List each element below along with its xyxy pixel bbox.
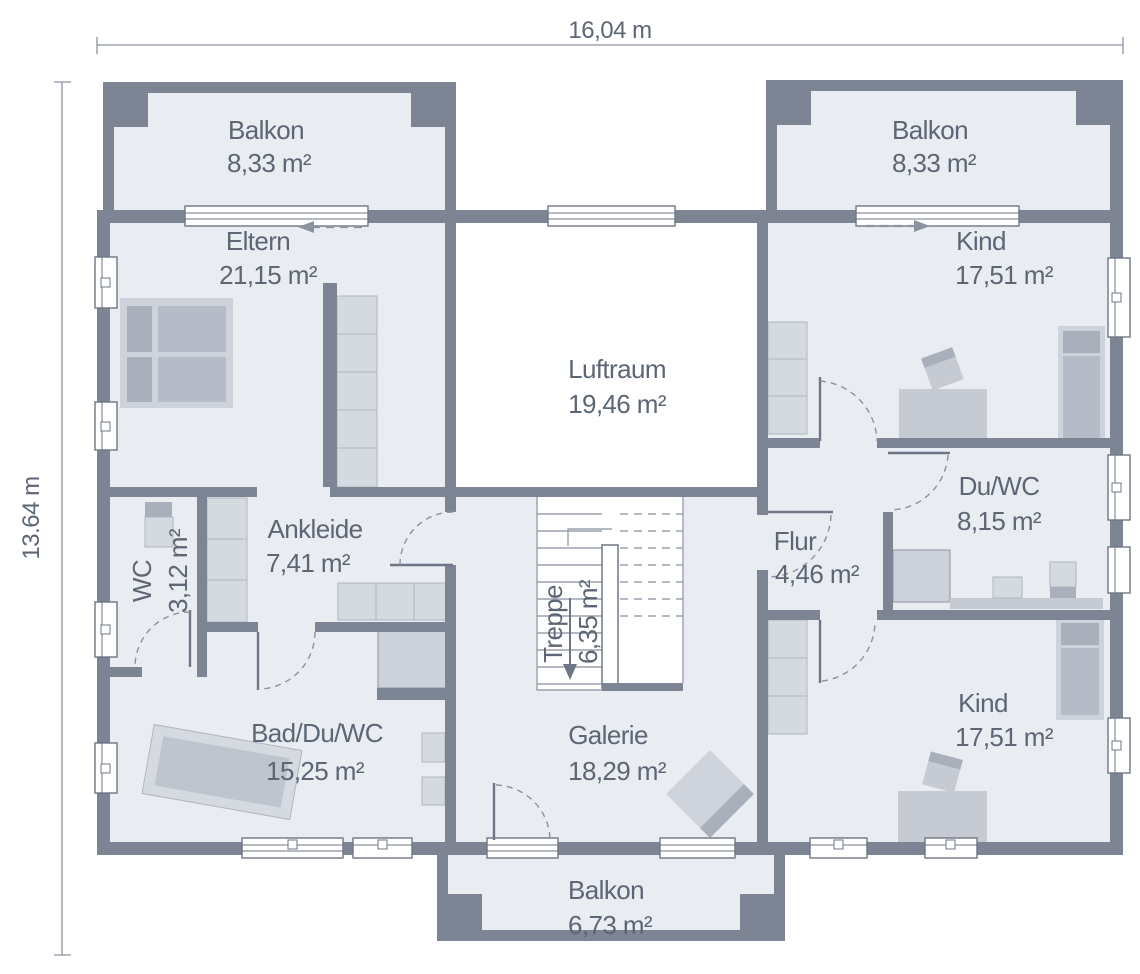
window-handle (378, 840, 387, 849)
floor-plan-page: 16,04 m 13.64 m Balkon 8,33 m² Balkon 8,… (0, 0, 1140, 974)
window-kind-bottom-right (1108, 718, 1130, 773)
wardrobe-kind-bottom (768, 620, 807, 734)
room-label-wc-area: 3,12 m² (163, 528, 193, 613)
room-label-balkon-bottom-name: Balkon (568, 875, 644, 905)
bed-pillow (127, 306, 152, 352)
bed-pillow (127, 357, 152, 402)
washbasin (422, 777, 445, 805)
bed-pillow (1063, 331, 1100, 353)
dimension-width-label: 16,04 m (568, 17, 651, 44)
wall-kind-bottom-north (877, 610, 1110, 620)
window (487, 838, 558, 858)
wall-wc-bottom (97, 667, 142, 677)
window (856, 206, 1019, 226)
toilet-tank (145, 502, 172, 517)
room-label-eltern-name: Eltern (226, 226, 290, 256)
stair-landing-edge (602, 683, 683, 691)
wall-ankleide-bottom (315, 622, 456, 632)
room-label-bad-name: Bad/Du/WC (251, 718, 383, 748)
window-handle (834, 840, 843, 849)
room-label-kind-top-area: 17,51 m² (955, 260, 1054, 290)
room-label-wc-name: WC (127, 560, 157, 602)
window-handle (946, 840, 955, 849)
closet-ankleide-left (207, 498, 247, 622)
window-bad-1 (242, 838, 343, 858)
room-label-balkon-bottom-area: 6,73 m² (568, 910, 653, 940)
bed-mattress (1063, 356, 1100, 439)
wall-ankleide-bottom (197, 622, 258, 632)
wardrobe-eltern (337, 296, 377, 487)
room-label-flur-name: Flur (774, 526, 817, 556)
room-label-balkon-tr-name: Balkon (892, 115, 968, 145)
wall-balcony (766, 80, 777, 223)
wall-balcony (103, 82, 114, 223)
vanity-counter (950, 598, 1103, 609)
balcony-pillar (448, 894, 482, 930)
room-label-kind-bottom-name: Kind (958, 688, 1008, 718)
room-label-bad-area: 15,25 m² (266, 756, 365, 786)
room-label-treppe-area: 6,35 m² (573, 579, 603, 664)
window-duwc-2 (1108, 547, 1130, 593)
room-label-ankleide-name: Ankleide (268, 514, 363, 544)
window-eltern-2 (95, 402, 117, 450)
wall-balcony (103, 82, 455, 93)
room-label-galerie-name: Galerie (568, 720, 648, 750)
bed-eltern (120, 298, 233, 408)
wall-shower (377, 688, 456, 700)
bed-mattress (158, 306, 226, 352)
room-label-luftraum-area: 19,46 m² (568, 389, 667, 419)
wall-luftraum-left (445, 223, 456, 497)
room-label-balkon-tl-name: Balkon (228, 115, 304, 145)
wall-balcony (437, 855, 448, 941)
wall-flur-duwc (883, 512, 893, 613)
room-label-kind-top-name: Kind (956, 226, 1006, 256)
room-label-balkon-tr-area: 8,33 m² (892, 148, 977, 178)
closet (207, 498, 247, 622)
desk-kind-bottom (898, 791, 987, 842)
toilet-tank (1050, 562, 1076, 587)
wall-ankleide-right (445, 565, 456, 632)
room-label-balkon-tl-area: 8,33 m² (227, 148, 312, 178)
balcony-pillar (777, 91, 811, 125)
wall-balcony (445, 82, 456, 223)
wall-kind-top-south (757, 438, 820, 448)
bed-kind-top (1058, 326, 1105, 444)
stair-stringer (602, 545, 618, 688)
wall-luftraum-right (757, 223, 768, 515)
window-kind-bottom-1 (810, 838, 867, 858)
balcony-pillar (1076, 91, 1110, 125)
wall-wc-right (197, 497, 207, 677)
window-handle (101, 625, 110, 634)
window (1108, 547, 1130, 593)
dimension-height-label: 13.64 m (18, 476, 45, 559)
wall-eltern-south (330, 487, 456, 497)
wall-eltern-stub (323, 283, 337, 487)
wardrobe (768, 322, 807, 434)
closet (338, 583, 453, 620)
shower-duwc (893, 550, 950, 602)
window-handle (1112, 293, 1121, 302)
wall-balcony (774, 855, 785, 941)
wall-kind-bottom-north (757, 610, 820, 620)
window-handle (101, 764, 110, 773)
bed-kind-bottom (1056, 618, 1104, 720)
window-galerie (660, 838, 735, 858)
room-label-luftraum-name: Luftraum (568, 354, 666, 384)
bed-mattress (1061, 648, 1099, 715)
wall-luftraum-bottom (445, 487, 768, 497)
window-handle (101, 278, 110, 287)
floor-plan-svg: 16,04 m 13.64 m Balkon 8,33 m² Balkon 8,… (0, 0, 1140, 974)
window-wc (95, 602, 117, 657)
window-handle (1112, 483, 1121, 492)
room-label-eltern-area: 21,15 m² (219, 260, 318, 290)
room-label-ankleide-area: 7,41 m² (266, 548, 351, 578)
wall-ankleide-right-stub (445, 497, 456, 512)
room-label-flur-area: 4,46 m² (775, 559, 860, 589)
window-kind-top-right (1108, 258, 1130, 337)
window-duwc-1 (1108, 455, 1130, 520)
window-handle (288, 840, 297, 849)
closet-ankleide-bottom (338, 583, 453, 620)
balcony-door-top-left (185, 206, 368, 226)
room-label-duwc-area: 8,15 m² (957, 506, 1042, 536)
bed-mattress (158, 357, 226, 402)
window-bad-left (95, 743, 117, 793)
window-eltern-1 (95, 257, 117, 308)
wardrobe (337, 296, 377, 487)
window-top-luftraum (548, 206, 675, 226)
toilet-seat (1050, 587, 1076, 598)
washbasin (993, 577, 1022, 598)
bed-pillow (1061, 623, 1099, 645)
window-kind-bottom-2 (925, 838, 977, 858)
balcony-door-top-right (856, 206, 1019, 226)
balcony-pillar (114, 93, 148, 127)
desk-kind-top (899, 389, 987, 438)
wall-balcony (766, 80, 1123, 91)
window-bad-2 (353, 838, 412, 858)
room-label-duwc-name: Du/WC (959, 471, 1040, 501)
wall-kind-top-south (877, 438, 1110, 448)
balcony-pillar (411, 93, 445, 127)
room-label-galerie-area: 18,29 m² (568, 756, 667, 786)
wardrobe (768, 620, 807, 734)
balcony-door-galerie (487, 838, 558, 858)
wardrobe-kind-top (768, 322, 807, 434)
window (660, 838, 735, 858)
room-label-treppe-name: Treppe (538, 585, 568, 663)
wall-eltern-south (97, 487, 257, 497)
window (185, 206, 368, 226)
wall-bad-right (445, 632, 456, 842)
shower-bad (378, 630, 446, 688)
window-handle (101, 422, 110, 431)
room-label-kind-bottom-area: 17,51 m² (955, 722, 1054, 752)
washbasin (422, 733, 445, 762)
balcony-pillar (740, 894, 774, 930)
window-handle (1112, 741, 1121, 750)
window (548, 206, 675, 226)
